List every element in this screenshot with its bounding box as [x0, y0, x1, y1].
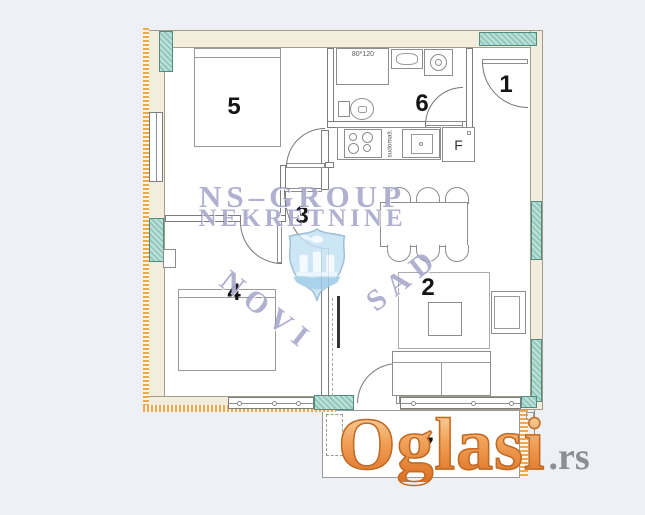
window-marker-top-right	[479, 32, 537, 46]
wall-bathroom-hall	[466, 48, 473, 128]
armchair	[491, 291, 526, 334]
sofa-divider-line	[441, 362, 442, 395]
burner	[362, 132, 373, 143]
toilet-bowl	[350, 98, 374, 120]
fridge-mark	[467, 131, 471, 135]
site-logo-name: Oglasi	[338, 408, 545, 482]
wall-room5-door-post	[325, 162, 334, 168]
window-mullion	[296, 401, 301, 406]
toilet-cistern	[338, 101, 350, 117]
bed-headboard-line	[195, 57, 280, 58]
fridge: F	[442, 127, 475, 162]
burner	[349, 133, 357, 141]
window-marker-right-lower	[531, 339, 542, 402]
room-label-1: 1	[492, 71, 520, 99]
armchair-cushion	[494, 296, 520, 329]
room-label-6: 6	[408, 90, 436, 118]
dishwasher-label-box: sudomaš.	[377, 128, 403, 159]
wall-room5-bathroom	[327, 48, 334, 124]
room-label-5: 5	[220, 93, 248, 121]
kitchen-sink-drain	[419, 142, 423, 146]
washing-machine-drum-inner	[435, 59, 442, 66]
bathroom-sink	[391, 49, 423, 69]
burner	[348, 143, 359, 154]
window-room5-left	[149, 112, 163, 182]
sofa	[392, 351, 491, 396]
site-logo: Oglasi .rs	[338, 408, 590, 482]
kitchen-sink	[402, 129, 440, 158]
window-marker-left-middle	[149, 218, 164, 262]
nightstand	[163, 249, 176, 268]
site-logo-domain-suffix: .rs	[548, 435, 589, 479]
burner	[363, 144, 371, 152]
window-marker-top-left	[159, 31, 173, 72]
coffee-table	[428, 302, 462, 336]
dishwasher-label: sudomaš.	[387, 129, 394, 157]
toilet-seat	[358, 106, 367, 113]
washing-machine	[424, 49, 453, 76]
window-mullion	[272, 401, 277, 406]
beam-dashed-line	[332, 298, 333, 396]
novi-sad-shield-logo	[276, 226, 358, 304]
floor-plan-canvas: 80*120 sudomaš. F	[0, 0, 645, 515]
shower-size-label: 80*120	[338, 51, 388, 58]
window-glass-line	[156, 113, 157, 181]
window-marker-right-upper	[531, 201, 542, 260]
window-mullion	[237, 401, 242, 406]
fridge-label: F	[454, 137, 463, 153]
window-room4-bottom	[228, 397, 314, 409]
sink-basin	[396, 53, 418, 65]
